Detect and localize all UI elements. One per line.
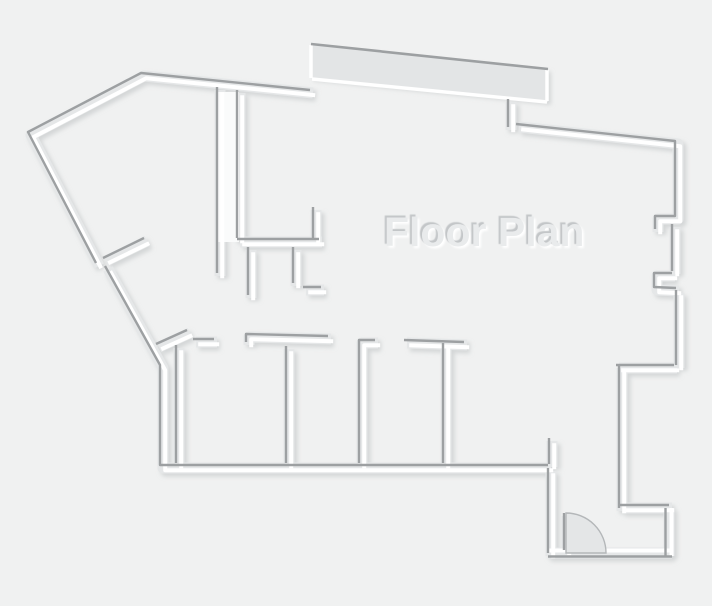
floor-plan-page: Floor Plan [0,0,712,606]
room-divider-3-top-highlight [409,345,469,347]
floor-plan-drawing [0,0,712,606]
floor-plan-title: Floor Plan [384,209,584,256]
